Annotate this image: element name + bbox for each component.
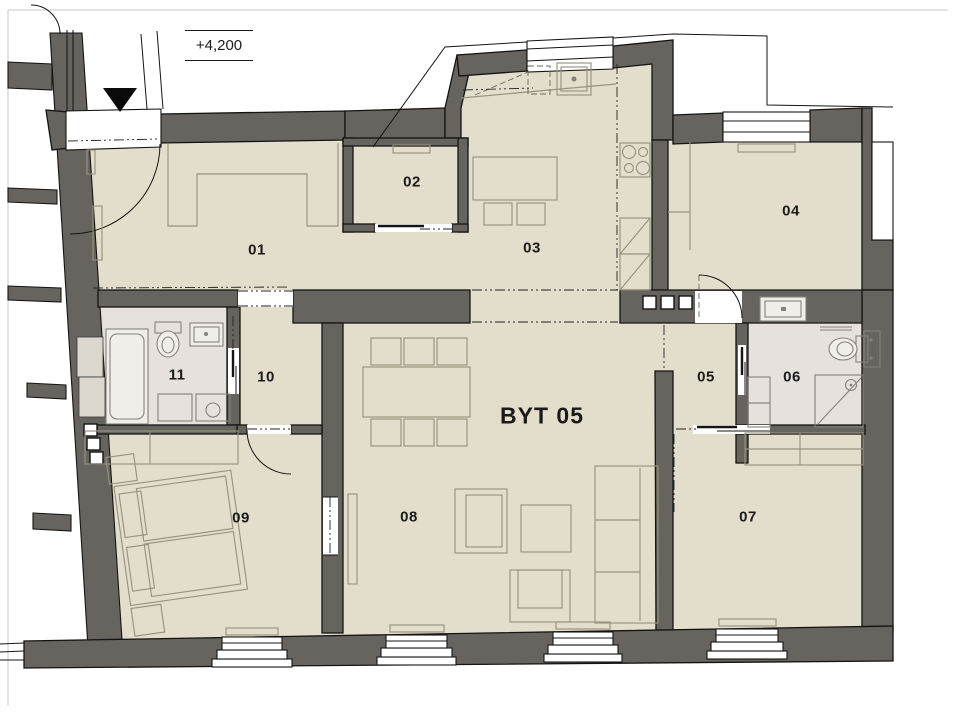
opening-09-08 bbox=[323, 497, 338, 555]
loggia-slot bbox=[872, 142, 893, 240]
room-label-07: 07 bbox=[739, 509, 757, 526]
room-label-04: 04 bbox=[782, 203, 800, 220]
room-label-08: 08 bbox=[400, 509, 418, 526]
entrance-arrow-icon bbox=[103, 88, 137, 112]
wall-top-room02 bbox=[345, 108, 445, 140]
room-label-05: 05 bbox=[697, 369, 715, 386]
sink-icon bbox=[190, 323, 223, 346]
neighbor-door-arc bbox=[31, 5, 60, 34]
floor-plan-drawing bbox=[0, 0, 953, 721]
bathtub-icon bbox=[106, 329, 148, 424]
sliding-door-02 bbox=[375, 224, 455, 232]
wall-corr10-stub-right bbox=[291, 425, 322, 434]
room-label-03: 03 bbox=[523, 240, 541, 257]
elevation-label: +4,200 bbox=[196, 37, 242, 54]
room-label-10: 10 bbox=[257, 369, 275, 386]
wall-bath11-top bbox=[98, 290, 238, 307]
entrance-opening bbox=[66, 109, 161, 150]
window-left-edge bbox=[0, 643, 24, 660]
apartment-label: BYT 05 bbox=[500, 403, 584, 430]
wall-entrance-left bbox=[46, 110, 68, 150]
wall-top-room04-right bbox=[810, 108, 862, 142]
elevation-marker: +4,200 bbox=[185, 30, 253, 61]
sliding-door-06 bbox=[738, 345, 746, 395]
wall-09-08 bbox=[322, 323, 343, 633]
wall-right-lower bbox=[862, 290, 893, 632]
room-label-11: 11 bbox=[169, 367, 186, 384]
floor-plan-page: +4,200 BYT 05 0102030405060708091011 bbox=[0, 0, 953, 721]
wall-top-room01 bbox=[160, 111, 345, 143]
wall-top-room04-left bbox=[673, 113, 723, 144]
window-room04 bbox=[723, 112, 810, 142]
wall-bath11-bottom bbox=[93, 425, 240, 434]
opening-01-10 bbox=[238, 290, 293, 307]
sink-icon bbox=[760, 297, 806, 321]
room-label-01: 01 bbox=[248, 242, 266, 259]
room-label-06: 06 bbox=[783, 369, 801, 386]
wall-kitchen-top bbox=[457, 50, 527, 76]
room-label-09: 09 bbox=[232, 510, 250, 527]
wall-01-08 bbox=[293, 290, 470, 323]
room-label-02: 02 bbox=[403, 174, 421, 191]
wall-niches bbox=[77, 337, 105, 417]
wall-03-04 bbox=[652, 140, 668, 290]
